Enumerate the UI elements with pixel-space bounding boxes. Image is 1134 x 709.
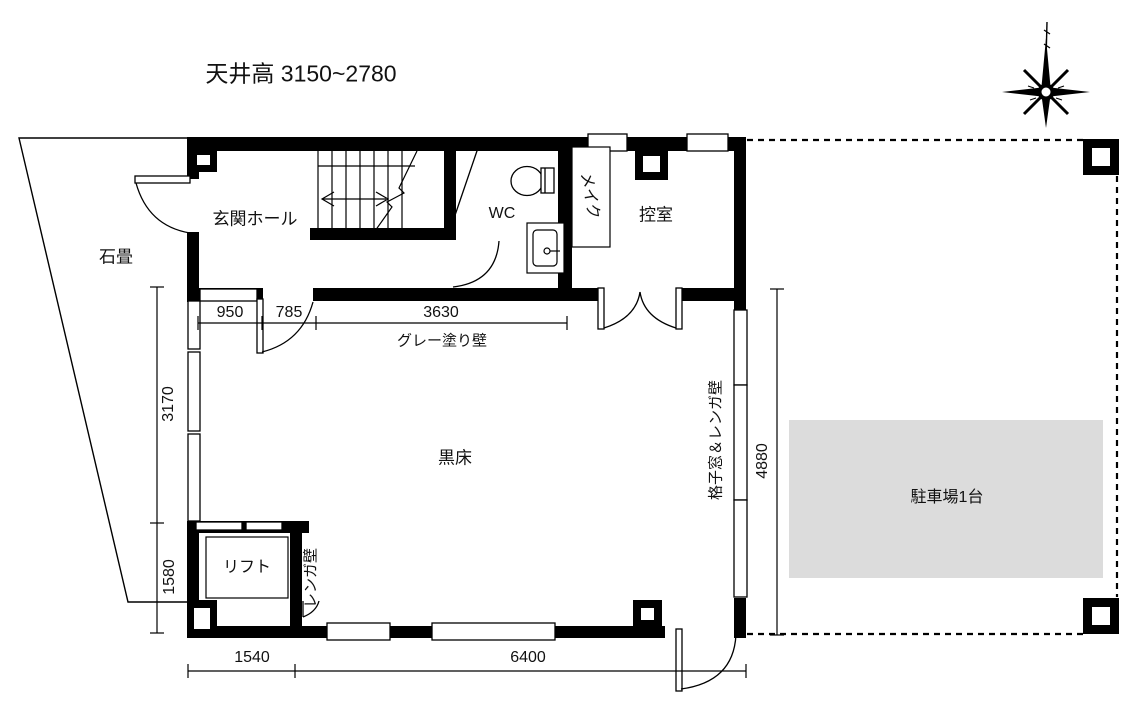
wc-door-arc bbox=[453, 241, 499, 287]
room-label-black-floor: 黒床 bbox=[438, 450, 472, 467]
dim-3170: 3170 bbox=[161, 386, 177, 422]
label-parking: 駐車場1台 bbox=[911, 490, 984, 506]
site-boundary bbox=[19, 138, 190, 602]
dim-785: 785 bbox=[276, 305, 303, 321]
toilet-icon bbox=[511, 167, 554, 196]
room-label-waiting-room: 控室 bbox=[639, 207, 673, 224]
column-top-left bbox=[190, 148, 217, 172]
compass-rose-icon bbox=[1002, 22, 1090, 128]
terrace-door-arc bbox=[681, 634, 736, 689]
entrance-door-arc bbox=[136, 183, 190, 233]
room-label-lift: リフト bbox=[223, 560, 271, 576]
floor-plan-drawing bbox=[0, 0, 1134, 709]
ceiling-height-note: 天井高 3150~2780 bbox=[205, 63, 396, 86]
column-lift-corner bbox=[187, 600, 217, 637]
room-label-entrance-hall: 玄関ホール bbox=[213, 211, 298, 228]
dim-950: 950 bbox=[217, 305, 244, 321]
door-leaves bbox=[135, 176, 682, 691]
floor-plan: 天井高 3150~2780 玄関ホール WC メイク 控室 黒床 リフト 石畳 … bbox=[0, 0, 1134, 709]
double-door-right-arc bbox=[640, 292, 676, 328]
label-stone-pavement: 石畳 bbox=[99, 249, 133, 266]
boundary-post-bottom bbox=[1083, 598, 1119, 634]
dim-1580: 1580 bbox=[162, 559, 178, 595]
boundary-post-top bbox=[1083, 139, 1119, 175]
dim-4880: 4880 bbox=[755, 443, 771, 479]
dim-1540: 1540 bbox=[234, 650, 270, 666]
label-brick-wall: レンガ壁 bbox=[304, 548, 319, 608]
dim-6400: 6400 bbox=[510, 650, 546, 666]
label-lattice-window-brick-wall: 格子窓＆レンガ壁 bbox=[709, 380, 724, 500]
double-door-left-arc bbox=[604, 292, 640, 328]
dim-3630: 3630 bbox=[423, 305, 459, 321]
room-label-wc: WC bbox=[489, 206, 516, 222]
column-waiting-room bbox=[635, 148, 668, 180]
stairs bbox=[318, 151, 417, 231]
column-bottom bbox=[633, 600, 662, 628]
label-gray-painted-wall: グレー塗り壁 bbox=[397, 334, 487, 349]
sink-icon bbox=[527, 223, 564, 273]
